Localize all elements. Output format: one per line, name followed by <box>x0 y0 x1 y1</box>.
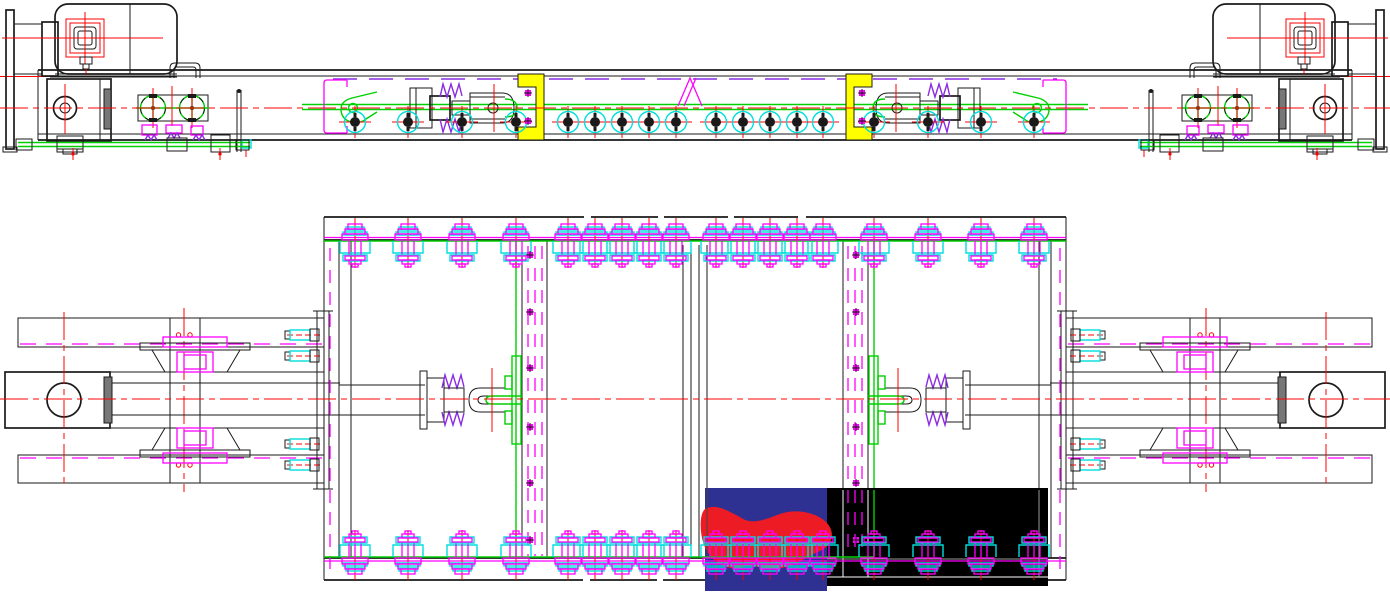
elevation-view <box>0 4 1390 160</box>
side-bolt <box>285 329 320 341</box>
rivet <box>852 308 860 316</box>
spring-clevis-left <box>339 356 522 444</box>
flange-bolt <box>661 530 691 580</box>
flange-bolt <box>393 218 423 268</box>
flange-bolt <box>580 530 610 580</box>
flange-bolt <box>607 530 637 580</box>
flange-bolt <box>661 218 691 268</box>
center-mark-chevron <box>678 78 702 106</box>
end-truck-right <box>1050 248 1385 578</box>
side-bolt <box>285 350 320 362</box>
rivet <box>852 479 860 487</box>
flange-bolt <box>607 218 637 268</box>
flange-bolt <box>580 218 610 268</box>
flange-bolt <box>755 218 785 268</box>
flange-bolt <box>501 218 531 268</box>
flange-bolt <box>966 218 996 268</box>
beam-bolt <box>660 106 692 138</box>
side-bolt <box>285 438 320 450</box>
flange-bolt <box>859 218 889 268</box>
flange-bolt <box>728 218 758 268</box>
rivet <box>526 423 534 431</box>
rivet <box>524 117 532 125</box>
flange-bolt <box>501 530 531 580</box>
side-bolts-left <box>285 329 320 471</box>
side-bolt <box>1070 329 1105 341</box>
flange-bolt <box>340 218 370 268</box>
flange-bolt <box>634 218 664 268</box>
rivet <box>858 117 866 125</box>
side-bolts-right <box>1070 329 1105 471</box>
rivet <box>852 536 860 544</box>
rivet <box>852 423 860 431</box>
flange-bolt <box>701 218 731 268</box>
rivet <box>526 364 534 372</box>
flange-bolt <box>340 530 370 580</box>
side-bolt <box>1070 459 1105 471</box>
rivet <box>526 479 534 487</box>
rivet <box>524 89 532 97</box>
rivet <box>858 89 866 97</box>
flange-bolt <box>634 530 664 580</box>
flange-bolt <box>553 530 583 580</box>
side-bolt <box>1070 438 1105 450</box>
flange-bolt <box>447 530 477 580</box>
side-bolt <box>285 459 320 471</box>
rivet <box>526 308 534 316</box>
channel-rivets <box>524 89 866 125</box>
flange-bolt <box>393 530 423 580</box>
tie-rod <box>302 105 1088 110</box>
rivet <box>526 251 534 259</box>
side-bolt <box>1070 350 1105 362</box>
cad-drawing-canvas <box>0 0 1390 593</box>
spring-clevis-right <box>868 356 1051 444</box>
rivet <box>526 536 534 544</box>
flange-bolt <box>1019 218 1049 268</box>
rivet <box>852 364 860 372</box>
flange-bolt <box>447 218 477 268</box>
plan-view <box>0 217 1390 591</box>
beam-bolt <box>392 106 424 138</box>
beam-bolt <box>807 106 839 138</box>
cad-drawing <box>0 0 1390 593</box>
flange-bolt <box>553 218 583 268</box>
rivet <box>852 251 860 259</box>
end-truck-left <box>5 248 340 578</box>
beam-bolt <box>965 106 997 138</box>
flange-bolt <box>913 218 943 268</box>
